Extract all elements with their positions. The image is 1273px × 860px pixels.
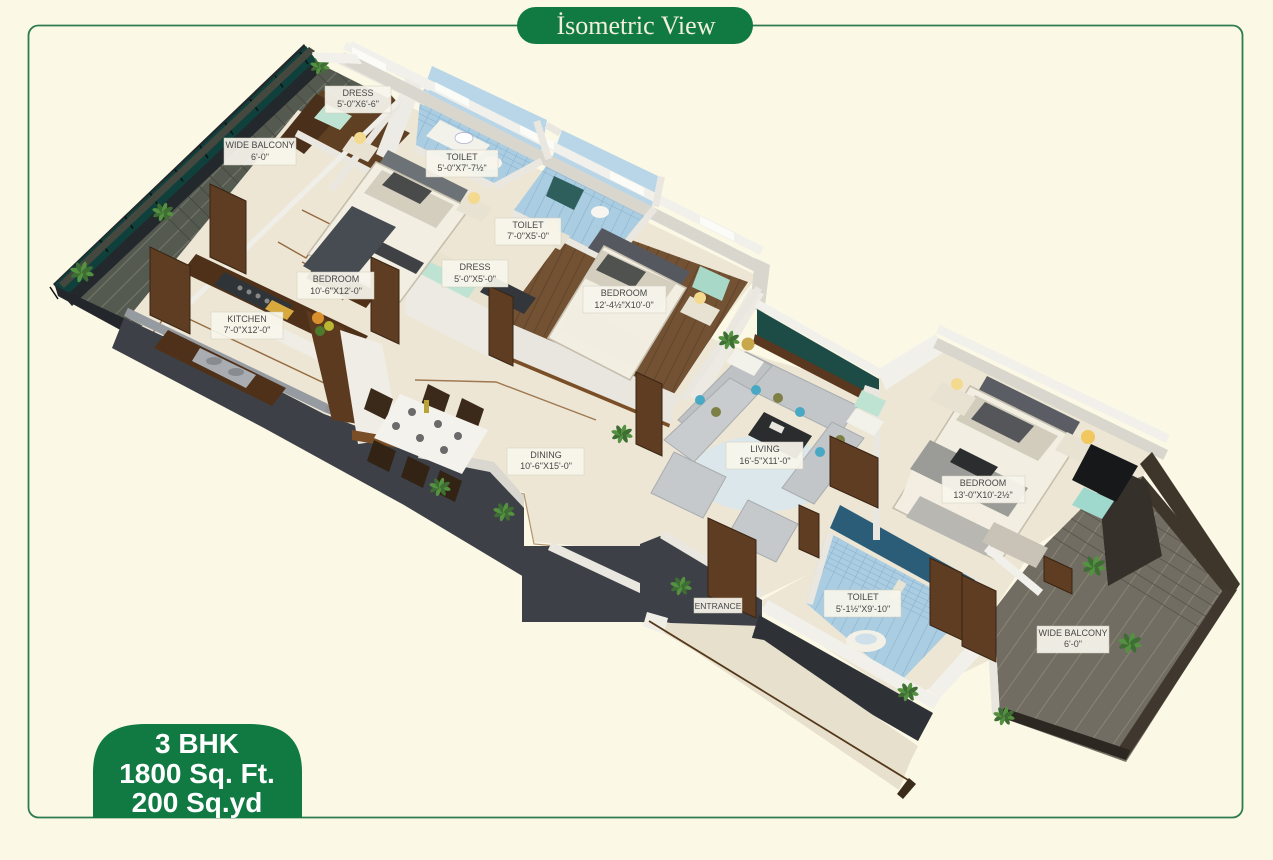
svg-text:DINING: DINING [530,450,562,460]
svg-text:10'-6"X15'-0": 10'-6"X15'-0" [520,461,572,471]
svg-text:6'-0": 6'-0" [1064,639,1082,649]
svg-text:5'-0"X6'-6": 5'-0"X6'-6" [337,99,379,109]
svg-text:5'-0"X5'-0": 5'-0"X5'-0" [454,274,496,284]
svg-text:1800 Sq. Ft.: 1800 Sq. Ft. [119,758,275,789]
svg-text:7'-0"X5'-0": 7'-0"X5'-0" [507,231,549,241]
svg-text:BEDROOM: BEDROOM [960,478,1007,488]
svg-text:16'-5"X11'-0": 16'-5"X11'-0" [739,456,790,466]
svg-text:200 Sq.yd: 200 Sq.yd [132,787,263,818]
svg-text:6'-0": 6'-0" [251,152,269,162]
svg-text:3 BHK: 3 BHK [155,728,239,759]
svg-text:DRESS: DRESS [342,88,373,98]
svg-text:DRESS: DRESS [459,262,490,272]
svg-text:10'-6"X12'-0": 10'-6"X12'-0" [310,286,362,296]
svg-text:İsometric View: İsometric View [557,11,716,40]
svg-text:ENTRANCE: ENTRANCE [695,601,742,611]
svg-text:TOILET: TOILET [847,592,879,602]
svg-text:7'-0"X12'-0": 7'-0"X12'-0" [224,325,271,335]
svg-text:BEDROOM: BEDROOM [313,274,360,284]
svg-text:12'-4½"X10'-0": 12'-4½"X10'-0" [594,300,653,310]
svg-text:TOILET: TOILET [512,220,544,230]
svg-text:TOILET: TOILET [446,152,478,162]
svg-text:WIDE BALCONY: WIDE BALCONY [1038,628,1107,638]
svg-text:LIVING: LIVING [750,444,780,454]
svg-text:5'-1½"X9'-10": 5'-1½"X9'-10" [836,604,890,614]
svg-text:KITCHEN: KITCHEN [227,314,267,324]
svg-text:13'-0"X10'-2½": 13'-0"X10'-2½" [953,490,1012,500]
svg-text:5'-0"X7'-7½": 5'-0"X7'-7½" [437,163,486,173]
svg-text:WIDE BALCONY: WIDE BALCONY [225,140,294,150]
svg-text:BEDROOM: BEDROOM [601,288,648,298]
